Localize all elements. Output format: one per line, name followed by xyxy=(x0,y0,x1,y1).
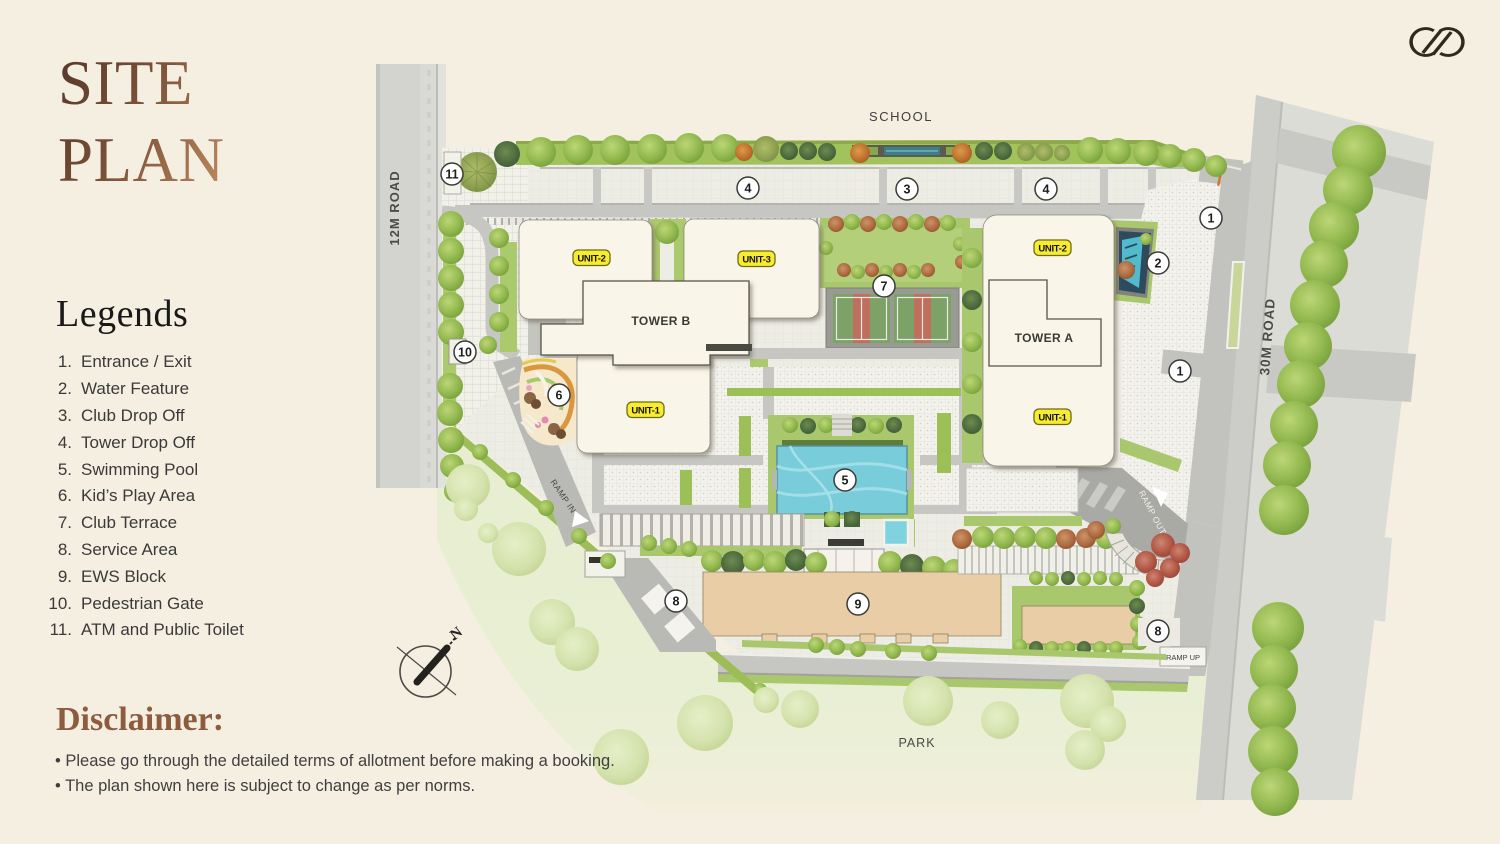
svg-text:5: 5 xyxy=(842,474,849,488)
svg-text:2: 2 xyxy=(1155,257,1162,271)
svg-text:3: 3 xyxy=(904,183,911,197)
svg-text:1: 1 xyxy=(1177,365,1184,379)
svg-text:7: 7 xyxy=(881,280,888,294)
svg-text:SCHOOL: SCHOOL xyxy=(869,109,933,124)
svg-text:RAMP UP: RAMP UP xyxy=(1166,653,1200,662)
svg-text:9: 9 xyxy=(855,598,862,612)
svg-text:UNIT-2: UNIT-2 xyxy=(1038,244,1066,255)
svg-text:TOWER A: TOWER A xyxy=(1015,331,1074,345)
svg-text:4: 4 xyxy=(745,182,752,196)
svg-text:UNIT-3: UNIT-3 xyxy=(742,255,770,266)
svg-text:1: 1 xyxy=(1208,212,1215,226)
svg-text:UNIT-1: UNIT-1 xyxy=(631,406,660,417)
svg-text:8: 8 xyxy=(1155,625,1162,639)
svg-text:4: 4 xyxy=(1043,183,1050,197)
svg-text:10: 10 xyxy=(458,346,472,360)
svg-text:UNIT-1: UNIT-1 xyxy=(1038,413,1067,424)
svg-text:PARK: PARK xyxy=(898,736,935,750)
svg-text:N: N xyxy=(447,624,466,643)
svg-text:UNIT-2: UNIT-2 xyxy=(577,254,605,265)
svg-text:TOWER B: TOWER B xyxy=(631,314,690,328)
svg-text:11: 11 xyxy=(445,168,458,182)
svg-text:8: 8 xyxy=(673,595,680,609)
svg-text:12M ROAD: 12M ROAD xyxy=(387,170,402,245)
svg-text:6: 6 xyxy=(556,389,563,403)
